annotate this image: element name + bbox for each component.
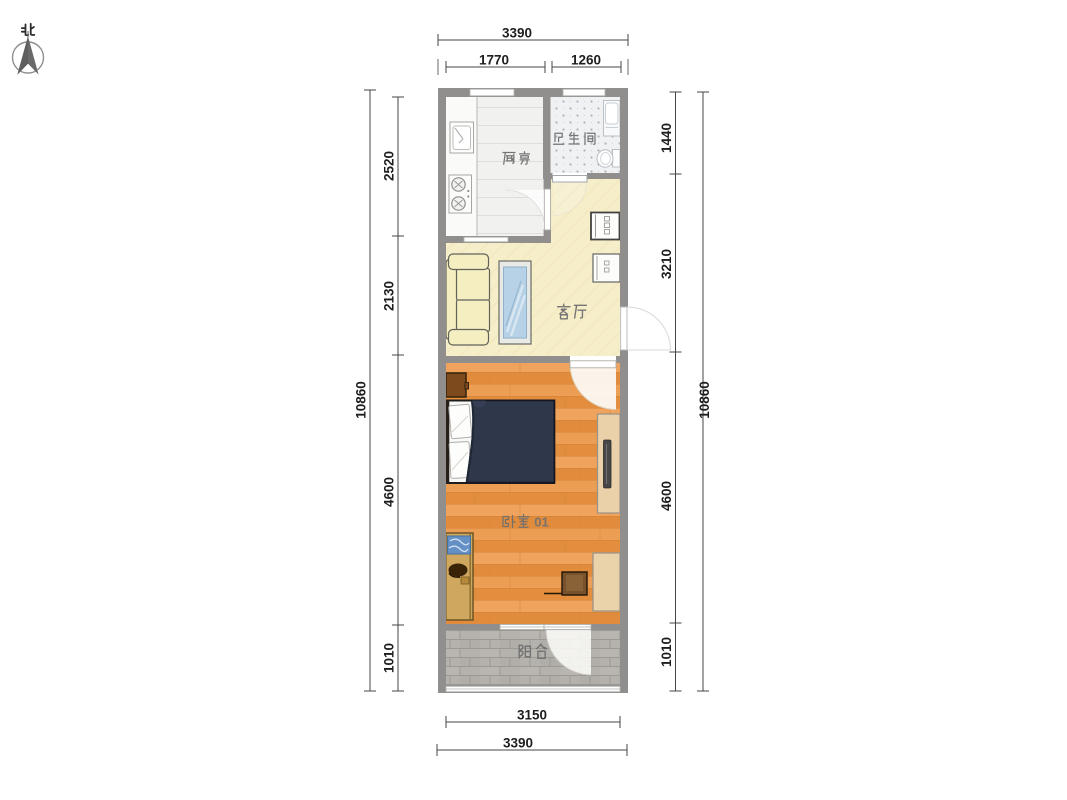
svg-text:4600: 4600: [659, 481, 674, 511]
svg-text:10860: 10860: [697, 381, 712, 419]
svg-text:1440: 1440: [659, 123, 674, 153]
svg-text:10860: 10860: [354, 381, 369, 419]
svg-text:1260: 1260: [571, 53, 601, 68]
svg-text:3390: 3390: [503, 736, 533, 751]
svg-text:1010: 1010: [382, 643, 397, 673]
svg-text:4600: 4600: [382, 477, 397, 507]
svg-text:01: 01: [534, 515, 548, 530]
svg-text:3210: 3210: [659, 249, 674, 279]
svg-text:2520: 2520: [382, 151, 397, 181]
svg-text:3150: 3150: [517, 708, 547, 723]
svg-text:1010: 1010: [659, 637, 674, 667]
svg-text:3390: 3390: [502, 26, 532, 41]
svg-text:2130: 2130: [382, 281, 397, 311]
svg-text:1770: 1770: [479, 53, 509, 68]
